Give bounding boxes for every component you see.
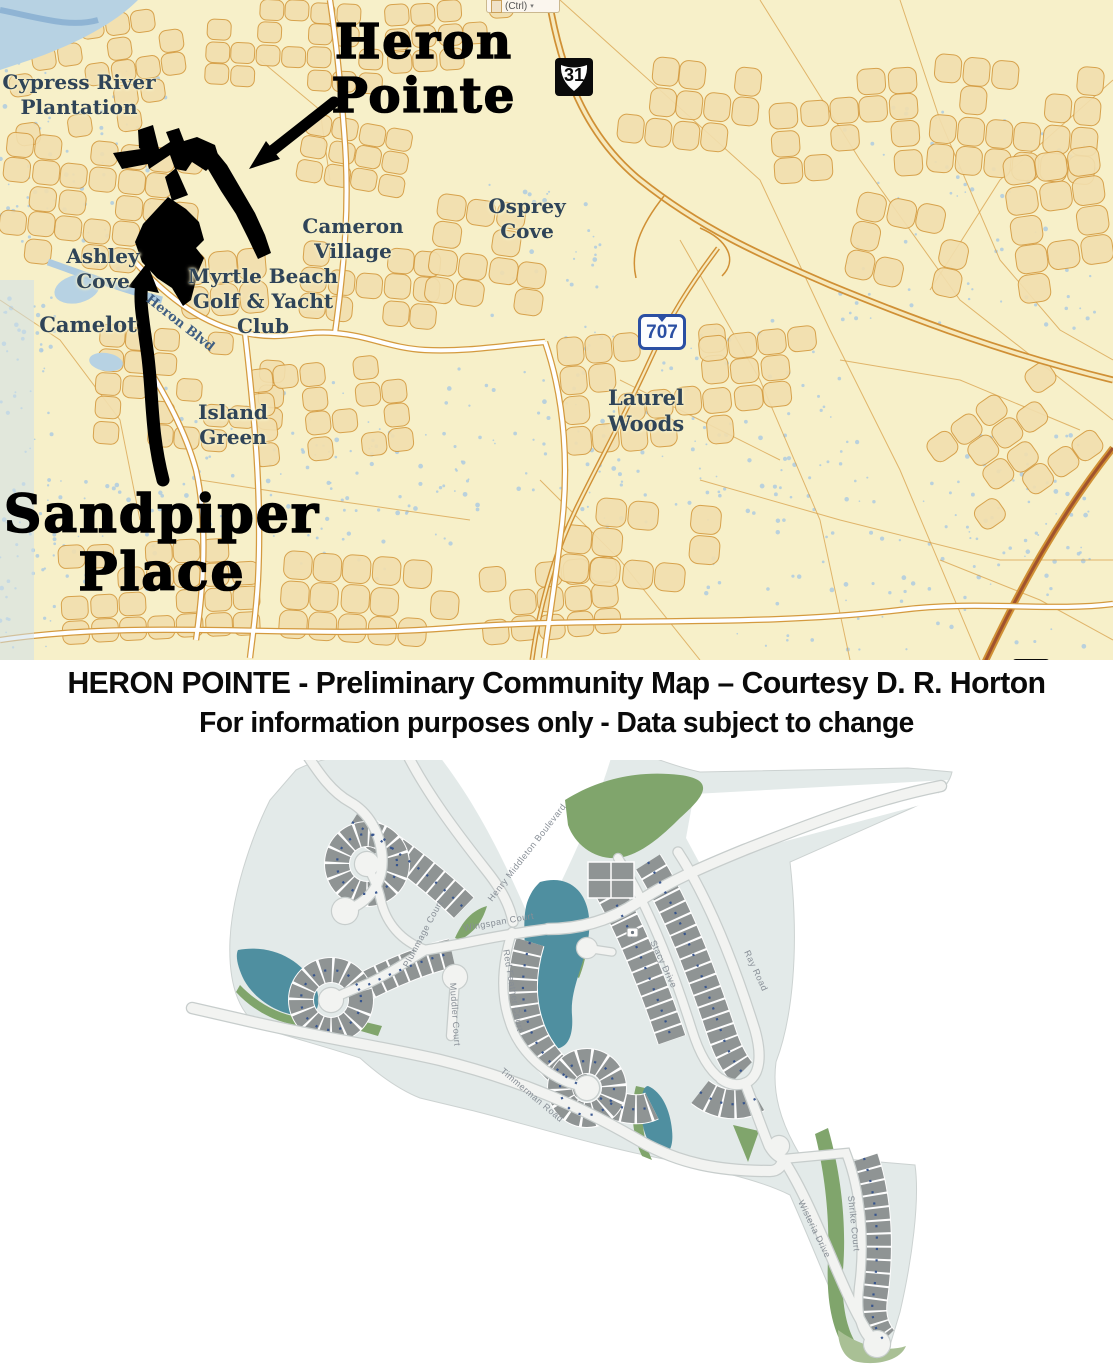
annotation-line: Heron [332,16,517,70]
annotation-line: Place [4,544,320,602]
label-cameron-village: Cameron Village [302,214,403,264]
annotation-sandpiper-place: Sandpiper Place [4,486,320,602]
label-line: Cove [488,219,566,244]
label-line: Village [302,239,403,264]
route-number: 31 [555,65,593,86]
label-line: Osprey [488,194,566,219]
screenshot: Cypress River Plantation Heron Pointe As… [0,0,1113,1365]
paste-options-button[interactable]: (Ctrl) ▾ [486,0,560,13]
amenity-marker [627,928,638,937]
clipboard-icon [491,0,502,13]
label-line: Plantation [2,95,155,120]
annotation-line: Sandpiper [4,486,320,544]
label-line: Laurel [608,385,684,411]
label-line: Ashley [66,244,139,269]
label-line: Island [198,400,268,425]
route-707-shield: 707 [638,314,686,350]
label-line: Myrtle Beach [188,264,338,289]
caption-line-1: HERON POINTE - Preliminary Community Map… [17,665,1097,701]
label-line: Club [188,314,338,339]
paste-options-label: (Ctrl) [505,1,527,12]
label-camelot: Camelot [39,312,137,338]
site-plan-canvas: Henry Middleton Boulevard Wingspan Court… [0,760,1113,1365]
label-cypress-river-plantation: Cypress River Plantation [2,70,155,120]
route-number: 707 [641,322,683,344]
route-31-shield: 31 [555,58,593,96]
label-laurel-woods: Laurel Woods [608,385,684,438]
label-line: Camelot [39,312,137,338]
community-site-plan: Henry Middleton Boulevard Wingspan Court… [0,760,1113,1365]
label-myrtle-beach-golf-yacht-club: Myrtle Beach Golf & Yacht Club [188,264,338,339]
lot-cluster [588,862,634,898]
annotation-line: Pointe [332,70,517,124]
label-line: Woods [608,411,684,437]
label-line: Cove [66,269,139,294]
overview-map: Cypress River Plantation Heron Pointe As… [0,0,1113,660]
annotation-heron-pointe: Heron Pointe [332,16,517,124]
label-line: Golf & Yacht [188,289,338,314]
map-caption: HERON POINTE - Preliminary Community Map… [0,660,1113,760]
label-island-green: Island Green [198,400,268,450]
caption-line-2: For information purposes only - Data sub… [17,707,1097,740]
label-line: Cypress River [2,70,155,95]
chevron-down-icon: ▾ [530,2,534,10]
label-ashley-cove: Ashley Cove [66,244,139,294]
label-line: Cameron [302,214,403,239]
label-line: Green [198,425,268,450]
label-osprey-cove: Osprey Cove [488,194,566,244]
